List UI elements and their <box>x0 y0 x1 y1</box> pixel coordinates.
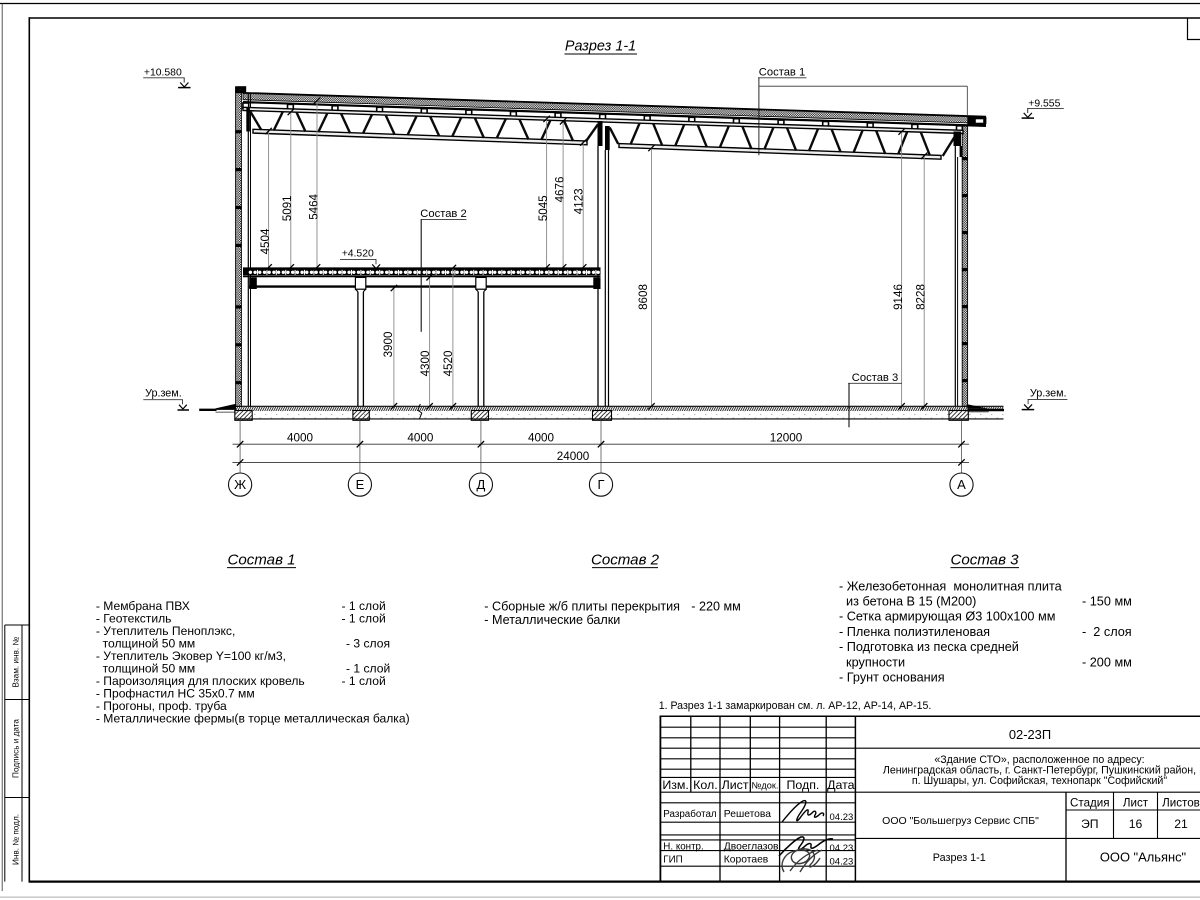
svg-text:ООО "Большегруз Сервис СПБ": ООО "Большегруз Сервис СПБ" <box>882 815 1039 827</box>
svg-text:9146: 9146 <box>892 284 905 310</box>
svg-text:Разработал: Разработал <box>663 809 717 820</box>
svg-text:- Железобетонная монолитная п: - Железобетонная монолитная плита <box>839 579 1063 593</box>
svg-text:4300: 4300 <box>419 351 432 377</box>
svg-text:- 220 мм: - 220 мм <box>691 600 741 614</box>
svg-text:- 1 слой: - 1 слой <box>342 612 386 626</box>
svg-text:№док.: №док. <box>752 781 779 791</box>
svg-text:4520: 4520 <box>442 351 455 377</box>
svg-text:Стадия: Стадия <box>1070 797 1110 810</box>
svg-text:+9.555: +9.555 <box>1028 98 1060 109</box>
svg-text:- Грунт основания: - Грунт основания <box>839 671 945 685</box>
svg-text:Решетова: Решетова <box>724 809 771 820</box>
svg-text:А: А <box>957 477 966 492</box>
svg-text:- 3 слоя: - 3 слоя <box>346 637 390 651</box>
svg-text:Н. контр.: Н. контр. <box>663 842 703 853</box>
svg-text:ГИП: ГИП <box>663 855 682 866</box>
svg-text:3900: 3900 <box>382 332 395 358</box>
svg-text:Лист: Лист <box>722 778 749 792</box>
svg-text:Состав 2: Состав 2 <box>591 552 660 569</box>
svg-text:Г: Г <box>597 477 604 492</box>
svg-text:Взам. инв. №: Взам. инв. № <box>12 637 21 688</box>
svg-text:- Подготовка из песка средней: - Подготовка из песка средней <box>839 640 1019 654</box>
svg-text:+10.580: +10.580 <box>144 67 182 78</box>
svg-text:04.23: 04.23 <box>830 843 854 854</box>
svg-text:- Металлические фермы(в торце: - Металлические фермы(в торце металличес… <box>96 712 410 726</box>
svg-text:Ур.зем.: Ур.зем. <box>145 388 182 400</box>
svg-text:8228: 8228 <box>915 284 928 310</box>
svg-text:- 1 слой: - 1 слой <box>342 674 386 688</box>
svg-text:Кол.: Кол. <box>693 778 718 792</box>
svg-text:Ж: Ж <box>234 477 246 492</box>
svg-text:- Сборные ж/б плиты перекрытия: - Сборные ж/б плиты перекрытия <box>484 600 680 614</box>
svg-text:Лист: Лист <box>1123 797 1149 810</box>
svg-text:02-23П: 02-23П <box>1009 727 1051 742</box>
svg-text:Е: Е <box>356 477 365 492</box>
svg-text:крупности: крупности <box>839 655 905 669</box>
svg-text:8608: 8608 <box>637 284 650 310</box>
svg-text:Состав 1: Состав 1 <box>759 66 805 78</box>
svg-text:Подп.: Подп. <box>786 778 819 792</box>
svg-text:- Сетка армирующая Ø3 100х100: - Сетка армирующая Ø3 100х100 мм <box>839 610 1055 624</box>
svg-text:1. Разрез 1-1 замаркирован см.: 1. Разрез 1-1 замаркирован см. л. АР-12,… <box>659 700 932 712</box>
svg-text:12000: 12000 <box>770 431 803 444</box>
svg-text:из бетона В 15 (М200): из бетона В 15 (М200) <box>839 595 976 609</box>
svg-text:Коротаев: Коротаев <box>724 855 769 866</box>
svg-text:ЭП: ЭП <box>1081 817 1099 831</box>
svg-text:Дата: Дата <box>827 778 855 792</box>
svg-text:Состав 3: Состав 3 <box>852 372 898 384</box>
svg-text:- Пленка полиэтиленовая: - Пленка полиэтиленовая <box>839 625 990 639</box>
svg-text:- Металлические балки: - Металлические балки <box>484 613 620 627</box>
svg-text:- 150 мм: - 150 мм <box>1082 595 1132 609</box>
svg-text:- 200 мм: - 200 мм <box>1082 655 1132 669</box>
svg-text:4000: 4000 <box>528 431 555 444</box>
svg-text:Подпись и дата: Подпись и дата <box>12 719 21 778</box>
svg-text:24000: 24000 <box>557 450 590 463</box>
svg-text:Состав 3: Состав 3 <box>950 551 1019 568</box>
svg-text:Разрез 1-1: Разрез 1-1 <box>933 852 986 864</box>
svg-text:4000: 4000 <box>407 431 434 444</box>
svg-text:- 2 слоя: - 2 слоя <box>1082 625 1132 639</box>
svg-text:4504: 4504 <box>259 228 272 254</box>
svg-text:4000: 4000 <box>287 431 314 444</box>
svg-text:Изм.: Изм. <box>662 778 689 792</box>
svg-text:Инв. № подл.: Инв. № подл. <box>12 814 21 865</box>
svg-text:Ур.зем.: Ур.зем. <box>1030 387 1067 399</box>
svg-text:5464: 5464 <box>307 193 320 219</box>
svg-text:Состав 2: Состав 2 <box>420 208 466 220</box>
svg-text:04.23: 04.23 <box>830 812 854 823</box>
svg-text:04.23: 04.23 <box>830 857 854 868</box>
svg-text:16: 16 <box>1129 817 1143 831</box>
svg-text:+4.520: +4.520 <box>342 249 374 260</box>
svg-text:Двоеглазов: Двоеглазов <box>724 842 779 853</box>
svg-text:5091: 5091 <box>281 195 294 221</box>
svg-text:Листов: Листов <box>1162 797 1200 810</box>
svg-text:21: 21 <box>1174 817 1188 831</box>
svg-text:п. Шушары, ул. Софийская, техн: п. Шушары, ул. Софийская, технопарк "Соф… <box>912 775 1167 787</box>
svg-text:ООО "Альянс": ООО "Альянс" <box>1100 850 1187 865</box>
svg-text:4123: 4123 <box>573 188 586 214</box>
svg-text:Состав 1: Состав 1 <box>227 552 295 569</box>
svg-text:5045: 5045 <box>537 195 550 221</box>
svg-text:4676: 4676 <box>554 177 567 203</box>
svg-text:Д: Д <box>476 477 485 492</box>
svg-text:Разрез 1-1: Разрез 1-1 <box>565 39 636 55</box>
